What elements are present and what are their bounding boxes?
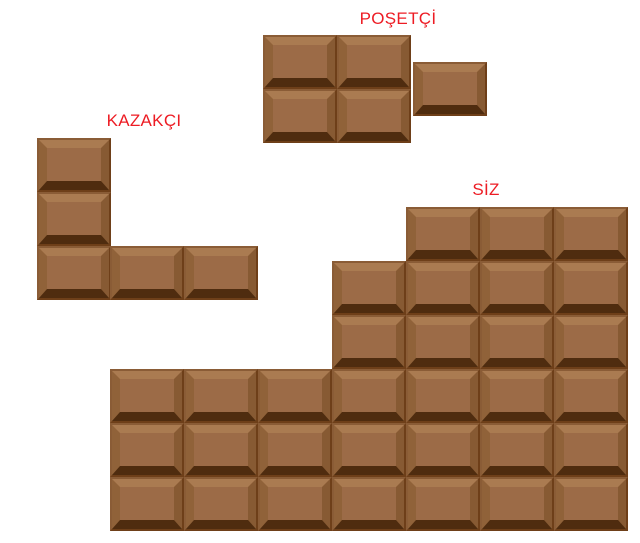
chocolate-piece: [406, 207, 480, 261]
chocolate-piece-face: [260, 371, 330, 421]
chocolate-piece-face: [112, 425, 182, 475]
chocolate-piece: [258, 369, 332, 423]
chocolate-piece-face: [334, 479, 404, 529]
chocolate-piece-face: [186, 425, 256, 475]
chocolate-piece-face: [408, 317, 478, 367]
chocolate-piece-face: [408, 371, 478, 421]
chocolate-piece: [480, 477, 554, 531]
chocolate-piece-face: [482, 371, 552, 421]
chocolate-piece: [332, 369, 406, 423]
chocolate-piece: [184, 423, 258, 477]
chocolate-piece: [554, 261, 628, 315]
chocolate-piece-face: [112, 479, 182, 529]
chocolate-piece-face: [556, 209, 626, 259]
chocolate-piece-face: [334, 263, 404, 313]
chocolate-piece-face: [556, 425, 626, 475]
chocolate-piece: [480, 261, 554, 315]
chocolate-piece: [554, 423, 628, 477]
chocolate-piece: [332, 477, 406, 531]
group-label-siz: SİZ: [386, 180, 586, 200]
chocolate-piece: [258, 477, 332, 531]
chocolate-piece: [110, 369, 184, 423]
chocolate-piece: [480, 207, 554, 261]
chocolate-piece: [554, 369, 628, 423]
chocolate-piece: [258, 423, 332, 477]
chocolate-piece-face: [482, 263, 552, 313]
chocolate-piece-face: [334, 425, 404, 475]
chocolate-piece-face: [482, 425, 552, 475]
group-siz: SİZ: [0, 0, 640, 543]
chocolate-piece-face: [482, 317, 552, 367]
chocolate-piece-face: [482, 479, 552, 529]
chocolate-sharing-diagram: POŞETÇİ KAZAKÇI SİZ: [0, 0, 640, 543]
chocolate-piece: [332, 423, 406, 477]
chocolate-piece: [480, 423, 554, 477]
chocolate-piece-face: [556, 371, 626, 421]
chocolate-piece: [480, 369, 554, 423]
chocolate-piece-face: [556, 317, 626, 367]
chocolate-piece-face: [186, 479, 256, 529]
chocolate-piece: [184, 477, 258, 531]
chocolate-piece-face: [334, 317, 404, 367]
chocolate-piece: [184, 369, 258, 423]
chocolate-piece: [406, 261, 480, 315]
chocolate-piece-face: [556, 479, 626, 529]
chocolate-piece-face: [112, 371, 182, 421]
chocolate-piece-face: [260, 425, 330, 475]
chocolate-piece-face: [482, 209, 552, 259]
chocolate-piece: [110, 423, 184, 477]
chocolate-piece: [554, 477, 628, 531]
chocolate-piece: [406, 315, 480, 369]
chocolate-piece-face: [556, 263, 626, 313]
chocolate-piece: [406, 369, 480, 423]
chocolate-piece: [110, 477, 184, 531]
chocolate-piece-face: [408, 425, 478, 475]
chocolate-piece-face: [186, 371, 256, 421]
chocolate-piece-face: [260, 479, 330, 529]
chocolate-piece-face: [408, 209, 478, 259]
chocolate-piece: [554, 315, 628, 369]
chocolate-piece: [480, 315, 554, 369]
chocolate-piece-face: [408, 479, 478, 529]
chocolate-piece-face: [334, 371, 404, 421]
chocolate-piece: [406, 477, 480, 531]
chocolate-piece-face: [408, 263, 478, 313]
chocolate-piece: [332, 261, 406, 315]
chocolate-piece: [406, 423, 480, 477]
chocolate-piece: [332, 315, 406, 369]
chocolate-piece: [554, 207, 628, 261]
